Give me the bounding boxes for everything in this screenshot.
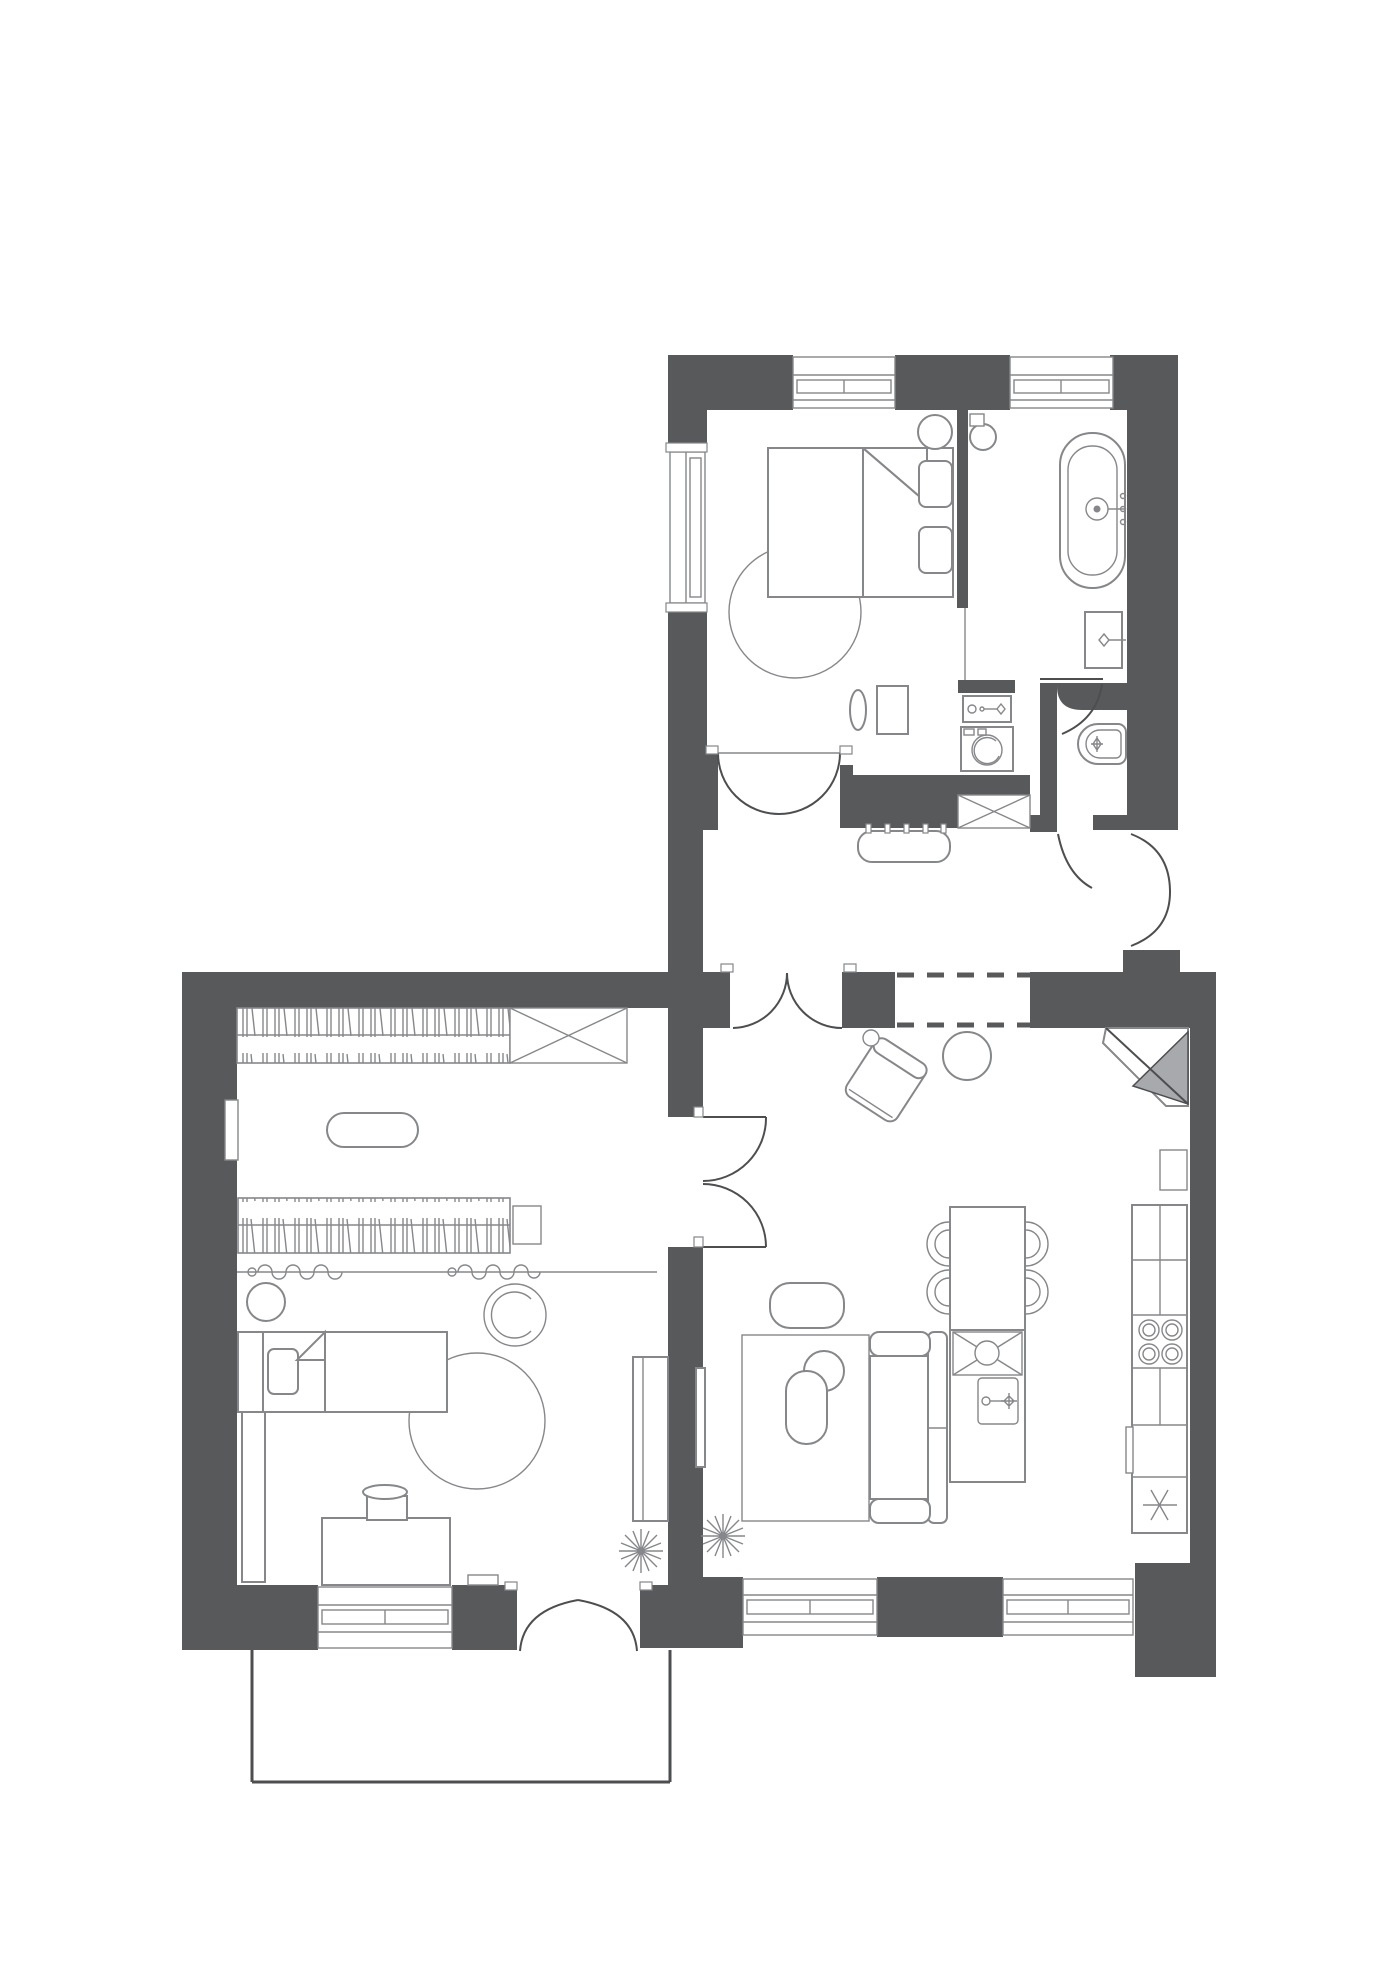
wall-living-top-east (1030, 972, 1216, 1028)
lounge-chair (842, 1035, 929, 1125)
ball-cushion (863, 1030, 879, 1046)
oval-coffee-table (786, 1371, 827, 1444)
wc-door (1058, 834, 1092, 888)
wall-junction-block (668, 972, 730, 1028)
washbasin-vanity (1085, 612, 1126, 668)
wall-top-left-pier (668, 355, 793, 410)
wall-top-right-pier (1110, 355, 1178, 410)
dining-set (927, 1207, 1048, 1330)
wall-kids-bottom-mid (452, 1585, 517, 1650)
wall-wc-southeast (1093, 815, 1127, 830)
wardrobe-hangers-top (237, 1008, 510, 1063)
kitchen-island (950, 1330, 1025, 1482)
window-living-bottom-left (743, 1579, 877, 1635)
upper-cabinet (1160, 1150, 1187, 1190)
pillow (268, 1349, 298, 1394)
single-bed (238, 1332, 447, 1412)
wall-shaft-right-stub (1030, 815, 1057, 832)
wall-wc-north-rounded (1057, 683, 1127, 710)
kitchen-counter (1126, 1205, 1187, 1533)
pillow (919, 527, 952, 573)
sofa (870, 1332, 947, 1523)
washing-machine (961, 727, 1013, 771)
floor-plan-canvas (0, 0, 1400, 1980)
vanity-stool (850, 690, 866, 730)
ventilation-shaft (958, 795, 1030, 828)
laundry-nook (961, 696, 1013, 771)
hall-to-living-double-door (721, 964, 856, 1028)
island-faucet-unit (978, 1378, 1018, 1424)
dressing-table (850, 686, 908, 734)
double-bed (768, 448, 953, 597)
wall-bed-bath-partition (957, 410, 968, 608)
wall-top-mid-pier (895, 355, 1010, 410)
wall-laundry-bar (958, 680, 1015, 693)
ottoman (770, 1283, 844, 1328)
round-side-table (943, 1032, 991, 1080)
living-kitchen (696, 1028, 1188, 1558)
window-bedroom-top (793, 357, 895, 408)
wall-shaft-top (958, 775, 1030, 795)
bedroom (729, 415, 953, 734)
wall-kids-west (182, 972, 237, 1650)
piano (322, 1485, 450, 1585)
window-living-bottom-right (1003, 1579, 1133, 1635)
corner-fireplace (1103, 1028, 1188, 1106)
wall-bedroom-south-stub (697, 753, 718, 830)
wall-bedroom-south-jamb (840, 765, 853, 828)
dining-chair (927, 1222, 949, 1266)
wall-shelf (468, 1575, 498, 1585)
dining-chair (1026, 1222, 1048, 1266)
wall-kids-top (182, 972, 668, 1008)
kids-entry-double-door (505, 1582, 652, 1651)
wall-wc-west (1040, 683, 1057, 815)
toilet-bidet (1078, 724, 1126, 764)
kids-room (237, 1008, 668, 1585)
window-kids-bottom (318, 1587, 452, 1648)
laundry-sink (963, 696, 1011, 722)
storage-box (513, 1206, 541, 1244)
hanging-chair (484, 1284, 546, 1346)
wall-entry-stub (1123, 950, 1180, 972)
plant-right (701, 1514, 745, 1558)
wardrobe-hangers-mid (238, 1198, 541, 1253)
wall-bedroom-south-band (853, 775, 958, 828)
plant (619, 1529, 663, 1573)
wall-kids-bottom-east (640, 1585, 700, 1648)
freestanding-bathtub (1060, 433, 1126, 588)
floor-plan-drawing (0, 0, 1400, 1980)
ottoman-pouf (327, 1113, 418, 1147)
bath-stool (970, 424, 996, 450)
wall-east-top-block (1127, 410, 1178, 830)
wall-living-corner-block (1135, 1563, 1216, 1677)
wall-kids-east-upper (668, 1028, 703, 1117)
window-bathroom-top (1010, 357, 1113, 408)
doors (505, 679, 1170, 1651)
dining-chair (927, 1270, 949, 1314)
island-sink-x (953, 1332, 1022, 1375)
side-counter (242, 1412, 265, 1582)
bedside-stool (918, 415, 952, 449)
floor-stool (247, 1283, 285, 1321)
wall-living-bottom-mid (877, 1577, 1003, 1637)
window-bedroom-west (666, 443, 707, 612)
wall-corridor-west (668, 830, 703, 972)
kids-room-double-door (694, 1107, 766, 1247)
wall-living-top-west (842, 972, 895, 1028)
wall-living-bottom-jog (697, 1577, 743, 1648)
wall-kids-bottom-west (182, 1585, 318, 1650)
cased-opening-dashed (897, 975, 1030, 1025)
dining-table (950, 1207, 1025, 1330)
wall-niche (225, 1100, 238, 1160)
built-in-closet-x (510, 1008, 627, 1063)
oven-handle (1126, 1427, 1133, 1473)
bedroom-double-door (706, 746, 852, 814)
pillow (919, 461, 952, 507)
dining-chair (1026, 1270, 1048, 1314)
hallway-bench (858, 824, 950, 862)
side-cabinet (633, 1357, 668, 1521)
curtain-rail (237, 1265, 657, 1279)
wall-control-box (970, 414, 984, 426)
tv-panel (696, 1368, 705, 1467)
entry-porch (252, 1650, 670, 1782)
bathroom (965, 414, 1126, 680)
water-closet (1078, 724, 1126, 764)
apartment-entry-door (1131, 834, 1170, 946)
